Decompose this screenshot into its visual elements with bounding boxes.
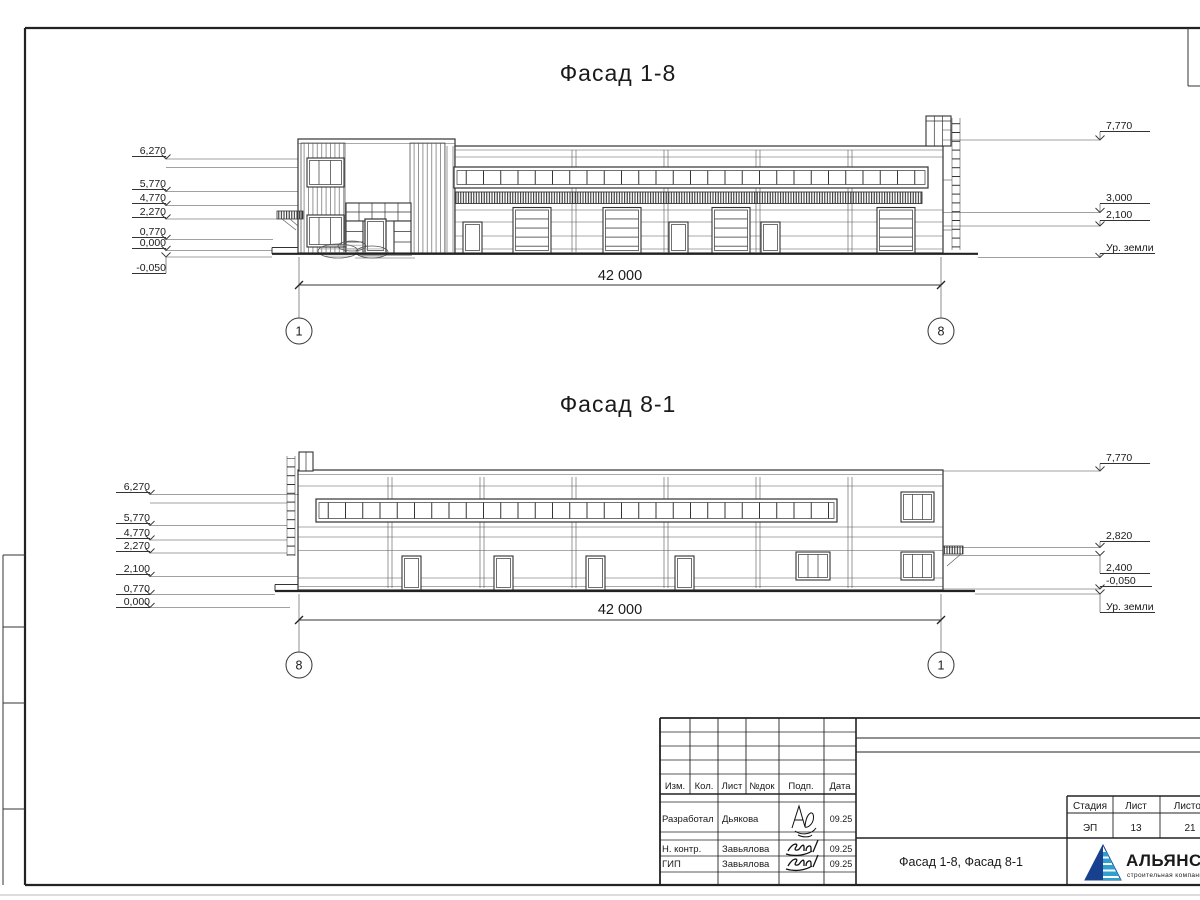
- elevation-label: 2,270: [140, 206, 166, 218]
- logo-pyramid-steps: [1103, 852, 1121, 880]
- clerestory-strip: [316, 499, 837, 522]
- garage-door: [513, 208, 551, 254]
- revision-header: Изм. Кол. Лист №док Подп. Дата: [665, 781, 851, 792]
- facade-8-1-title: Фасад 8-1: [560, 391, 677, 417]
- name: Завьялова: [722, 844, 770, 855]
- logo-name: АЛЬЯНС: [1126, 851, 1200, 870]
- sheet-value: 13: [1130, 823, 1142, 834]
- date: 09.25: [830, 859, 853, 869]
- elevation-label: 2,400: [1106, 562, 1132, 574]
- role: Разработал: [662, 814, 714, 825]
- axis-bubble-1: 1: [286, 318, 312, 344]
- drawing-sheet: Фасад 1-8: [0, 0, 1200, 900]
- elevation-label: 3,000: [1106, 192, 1132, 204]
- corner-box: [1188, 28, 1200, 86]
- axis-bubble-8: 8: [286, 652, 312, 678]
- title-block: Изм. Кол. Лист №док Подп. Дата Разработа…: [660, 718, 1200, 885]
- stage-cells: Стадия Лист Листов ЭП 13 21: [1073, 801, 1200, 834]
- axis-number: 1: [296, 325, 303, 339]
- corrugated-band: [456, 192, 922, 204]
- col-data: Дата: [829, 781, 851, 792]
- ground-level-label: Ур. земли: [1106, 601, 1154, 613]
- roof-penthouse: [926, 116, 951, 146]
- col-list: Лист: [722, 781, 743, 792]
- window: [307, 215, 344, 247]
- stage-header: Стадия: [1073, 801, 1107, 812]
- elevation-label: 0,000: [124, 596, 150, 608]
- axis-number: 8: [296, 659, 303, 673]
- axis-bubble-8: 8: [928, 318, 954, 344]
- window: [307, 158, 344, 187]
- elevation-label: 2,820: [1106, 530, 1132, 542]
- sheet-header: Лист: [1125, 801, 1147, 812]
- sheets-value: 21: [1184, 823, 1196, 834]
- logo-subtitle: строительная компания: [1127, 872, 1200, 879]
- dimension-42000: 42 000: [295, 257, 945, 318]
- stage-value: ЭП: [1083, 823, 1097, 834]
- col-ndok: №док: [749, 781, 775, 792]
- date: 09.25: [830, 844, 853, 854]
- overall-dimension: 42 000: [598, 268, 642, 284]
- name: Дьякова: [722, 814, 759, 825]
- elevation-marks-left: 6,270 5,770 4,770 2,270 2,100 0,770 0,00…: [116, 481, 299, 608]
- ground-level-label: Ур. земли: [1106, 242, 1154, 254]
- clerestory-strip: [454, 167, 928, 188]
- elevation-label: 4,770: [124, 527, 150, 539]
- edge-stamp-boxes: [3, 555, 25, 885]
- doc-title: Фасад 1-8, Фасад 8-1: [899, 855, 1023, 869]
- axis-number: 1: [938, 659, 945, 673]
- elevation-marks-right: 7,770 2,820 2,400 -0,050 Ур. земли: [943, 452, 1155, 613]
- col-podp: Подп.: [788, 781, 813, 792]
- facade-8-1-drawing: Фасад 8-1: [116, 391, 1155, 678]
- col-kol: Кол.: [695, 781, 714, 792]
- elevation-label: -0,050: [1106, 575, 1136, 587]
- elevation-label: 0,770: [124, 583, 150, 595]
- role: Н. контр.: [662, 844, 701, 855]
- elevation-marks-right: 7,770 3,000 2,100 Ур. земли: [943, 120, 1155, 258]
- signature: [786, 840, 818, 855]
- elevation-label: -0,050: [136, 262, 166, 274]
- elevation-label: 2,100: [1106, 209, 1132, 221]
- facade-1-8-drawing: Фасад 1-8: [132, 60, 1155, 344]
- sheets-header: Листов: [1174, 801, 1200, 812]
- elevation-label: 7,770: [1106, 120, 1132, 132]
- roof-penthouse: [299, 452, 313, 471]
- garage-door: [603, 208, 641, 254]
- signature: [786, 855, 818, 870]
- dimension-42000: 42 000: [295, 594, 945, 652]
- date: 09.25: [830, 814, 853, 824]
- col-izm: Изм.: [665, 781, 685, 792]
- elevation-label: 2,270: [124, 540, 150, 552]
- role: ГИП: [662, 859, 681, 870]
- roof-ladder: [287, 456, 295, 556]
- canopy: [943, 546, 963, 566]
- company-logo: АЛЬЯНС строительная компания: [1085, 845, 1200, 880]
- axis-bubble-1: 1: [928, 652, 954, 678]
- name: Завьялова: [722, 859, 770, 870]
- pilaster-strip: [410, 143, 445, 253]
- facade-1-8-title: Фасад 1-8: [560, 60, 677, 86]
- elevation-label: 7,770: [1106, 452, 1132, 464]
- overall-dimension: 42 000: [598, 602, 642, 618]
- garage-door: [877, 208, 915, 254]
- axis-number: 8: [938, 325, 945, 339]
- garage-door: [712, 208, 750, 254]
